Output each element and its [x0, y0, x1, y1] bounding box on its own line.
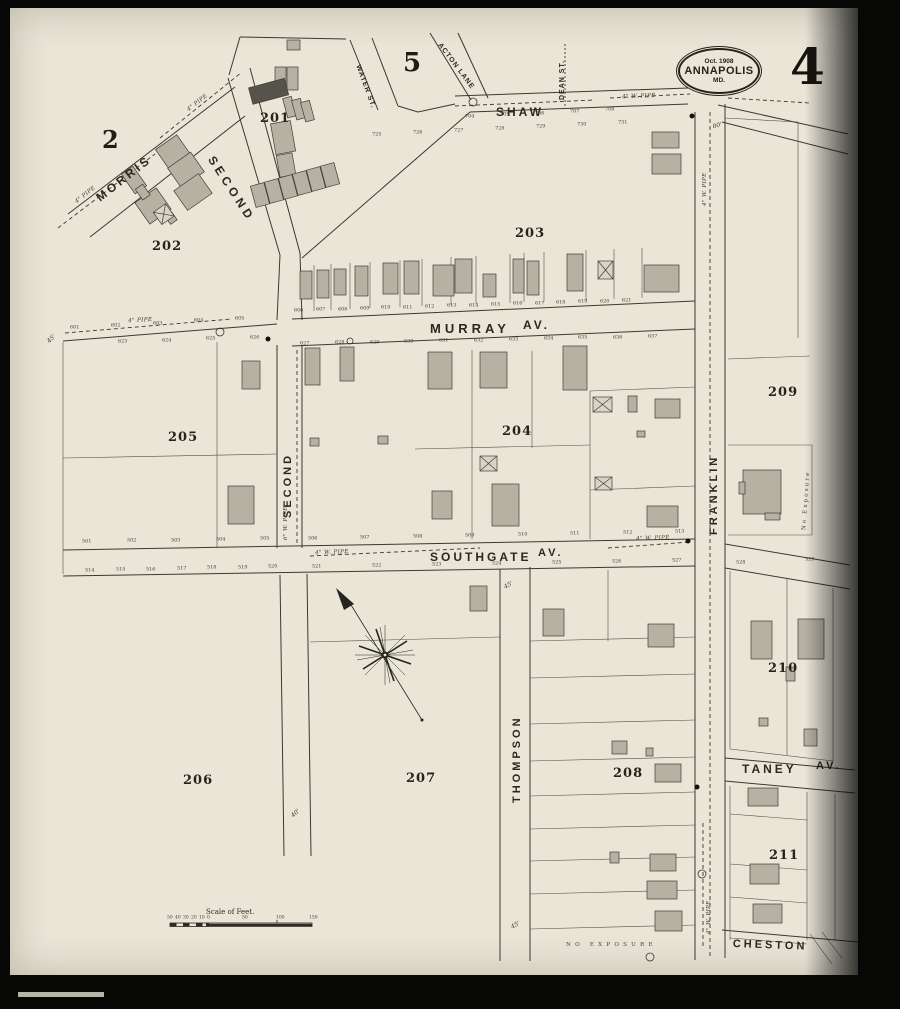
block-label-204: 204 [502, 425, 532, 438]
lot-number: 630 [404, 339, 413, 344]
lot-number: 603 [153, 321, 162, 326]
lot-number: 612 [425, 304, 434, 309]
lot-number: 524 [492, 561, 501, 566]
lot-number: 518 [207, 565, 216, 570]
lot-number: 522 [372, 563, 381, 568]
lot-number: 513 [675, 529, 684, 534]
pipe-label-southgate-west: 4" W. PIPE [315, 549, 349, 556]
lot-number: 150 [309, 915, 318, 919]
lot-number: 519 [238, 565, 247, 570]
map-sheet: SHAW MORRIS SECOND SECOND WATER ST. ACTO… [10, 8, 858, 975]
lot-number: 50 [242, 915, 248, 919]
lot-number: 604 [194, 318, 203, 323]
lot-number: 30 [183, 915, 189, 919]
scale-bar [170, 920, 312, 927]
lot-number: 608 [338, 307, 347, 312]
block-label-209: 209 [768, 386, 798, 399]
lot-number: 40 [175, 915, 181, 919]
map-geometry [10, 8, 858, 975]
circle-markers [216, 98, 706, 961]
lot-number: 100 [276, 915, 285, 919]
lot-number: 626 [250, 335, 259, 340]
street-label-southgate: SOUTHGATE [430, 551, 531, 563]
page-edge-sliver [18, 992, 104, 997]
lot-number: 707 [570, 109, 579, 114]
lot-number: 520 [268, 564, 277, 569]
lot-number: 523 [432, 562, 441, 567]
lot-number: 637 [648, 334, 657, 339]
no-exposure-bottom: No Exposure [566, 942, 657, 948]
lot-number: 632 [474, 338, 483, 343]
lot-number: 511 [570, 531, 579, 536]
street-label-dean: DEAN ST. [559, 60, 566, 100]
block-label-202: 202 [152, 240, 182, 253]
lot-number: 730 [577, 122, 586, 127]
lot-number: 527 [672, 558, 681, 563]
lot-number: 10 [199, 915, 205, 919]
pipe-label-cheston: 4" W. PIPE [706, 900, 712, 934]
map-date-badge-inner: Oct. 1908 ANNAPOLIS MD. [678, 48, 760, 94]
street-label-franklin: FRANKLIN [709, 455, 720, 535]
lot-number: 705 [500, 112, 509, 117]
lot-number: 510 [518, 532, 527, 537]
lot-number: 605 [235, 316, 244, 321]
lot-number: 617 [535, 301, 544, 306]
lot-number: 0 [207, 915, 210, 919]
lot-number: 615 [491, 302, 500, 307]
lot-number: 610 [381, 305, 390, 310]
lot-number: 502 [127, 538, 136, 543]
lot-number: 623 [118, 339, 127, 344]
lot-number: 611 [403, 305, 412, 310]
lot-number: 525 [552, 560, 561, 565]
lot-number: 506 [308, 536, 317, 541]
street-label-murray-av: AV. [523, 319, 550, 331]
lot-number: 627 [300, 341, 309, 346]
lot-number: 629 [370, 340, 379, 345]
block-label-211: 211 [769, 849, 799, 862]
lot-number: 621 [622, 298, 631, 303]
lot-number: 725 [372, 132, 381, 137]
lot-number: 726 [413, 130, 422, 135]
badge-state: MD. [713, 77, 725, 84]
lot-number: 20 [191, 915, 197, 919]
lot-number: 619 [578, 299, 587, 304]
lot-number: 727 [454, 128, 463, 133]
street-label-thompson: THOMPSON [512, 715, 523, 803]
lot-number: 616 [513, 301, 522, 306]
lot-number: 526 [612, 559, 621, 564]
lot-number: 624 [162, 338, 171, 343]
lot-number: 514 [85, 568, 94, 573]
block-label-206: 206 [183, 774, 213, 787]
lot-number: 631 [439, 338, 448, 343]
lot-number: 636 [613, 335, 622, 340]
lot-number: 628 [335, 340, 344, 345]
block-label-207: 207 [406, 772, 436, 785]
street-label-murray: MURRAY [430, 322, 510, 335]
photo-background: SHAW MORRIS SECOND SECOND WATER ST. ACTO… [0, 0, 900, 1009]
hydrant-markers [266, 114, 700, 790]
compass-rose-icon [336, 588, 424, 722]
lot-number: 613 [447, 303, 456, 308]
adjacent-sheet-2: 2 [102, 128, 119, 152]
badge-city: ANNAPOLIS [684, 65, 753, 77]
lot-number: 521 [312, 564, 321, 569]
lot-number: 618 [556, 300, 565, 305]
map-date-badge: Oct. 1908 ANNAPOLIS MD. [676, 46, 762, 96]
binding-shadow [805, 0, 900, 1009]
block-label-201: 201 [260, 112, 290, 125]
lot-number: 607 [316, 307, 325, 312]
lot-number: 614 [469, 303, 478, 308]
lot-number: 602 [111, 323, 120, 328]
pipe-label-second-lower: 6" W. PIPE [283, 506, 289, 540]
lot-number: 609 [360, 306, 369, 311]
shed-x-buildings [153, 204, 613, 490]
lot-number: 625 [206, 336, 215, 341]
pipe-label-southgate-east: 4" W. PIPE [636, 535, 670, 542]
lot-number: 516 [146, 567, 155, 572]
pipe-label-shaw-east: 4" W. PIPE [622, 93, 656, 100]
lot-number: 633 [509, 337, 518, 342]
lot-number: 509 [465, 533, 474, 538]
lot-number: 634 [544, 336, 553, 341]
lot-number: 706 [535, 111, 544, 116]
lot-number: 635 [578, 335, 587, 340]
lot-number: 606 [294, 308, 303, 313]
lot-number: 504 [216, 537, 225, 542]
pipe-label-franklin: 4" W. PIPE [702, 172, 708, 206]
lot-number: 501 [82, 539, 91, 544]
lot-number: 731 [618, 120, 627, 125]
lot-number: 517 [177, 566, 186, 571]
block-label-208: 208 [613, 767, 643, 780]
lot-number: 508 [413, 534, 422, 539]
lot-number: 512 [623, 530, 632, 535]
lot-number: 528 [736, 560, 745, 565]
street-label-southgate-av: AV. [538, 548, 564, 559]
lot-number: 728 [495, 126, 504, 131]
block-label-210: 210 [768, 662, 798, 675]
badge-date: Oct. 1908 [705, 58, 734, 65]
block-label-205: 205 [168, 431, 198, 444]
adjacent-sheet-5: 5 [403, 50, 421, 76]
lot-number: 620 [600, 299, 609, 304]
lot-number: 50 [167, 915, 173, 919]
street-label-taney: TANEY [742, 763, 797, 775]
lot-number: 515 [116, 567, 125, 572]
lot-number: 729 [536, 124, 545, 129]
lot-number: 704 [465, 114, 474, 119]
lot-number: 503 [171, 538, 180, 543]
lot-number: 601 [70, 325, 79, 330]
lot-number: 507 [360, 535, 369, 540]
block-label-203: 203 [515, 227, 545, 240]
lot-number: 505 [260, 536, 269, 541]
lot-number: 708 [605, 107, 614, 112]
